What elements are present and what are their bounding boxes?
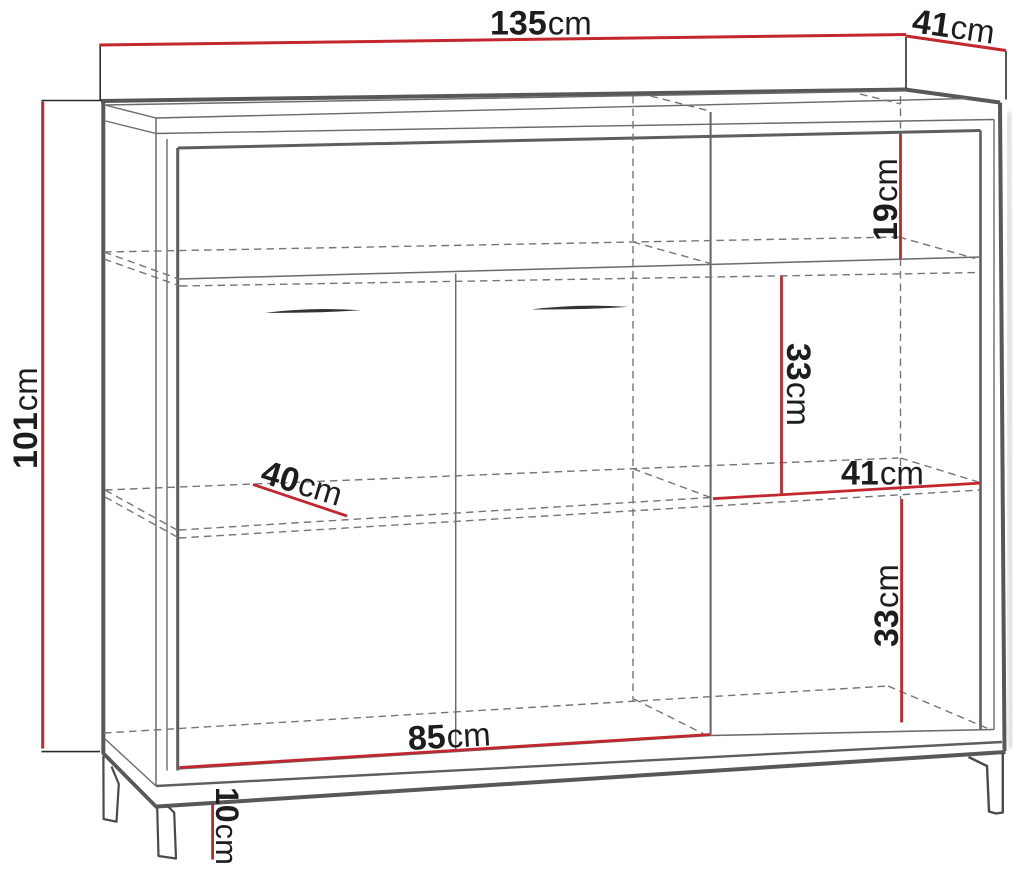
svg-text:85cm: 85cm bbox=[407, 715, 492, 758]
svg-text:135cm: 135cm bbox=[490, 5, 592, 43]
svg-text:33cm: 33cm bbox=[779, 343, 817, 426]
svg-text:33cm: 33cm bbox=[868, 564, 906, 647]
svg-text:10cm: 10cm bbox=[209, 787, 245, 865]
svg-text:101cm: 101cm bbox=[7, 367, 45, 469]
svg-text:41cm: 41cm bbox=[841, 455, 924, 493]
svg-text:19cm: 19cm bbox=[867, 158, 905, 241]
